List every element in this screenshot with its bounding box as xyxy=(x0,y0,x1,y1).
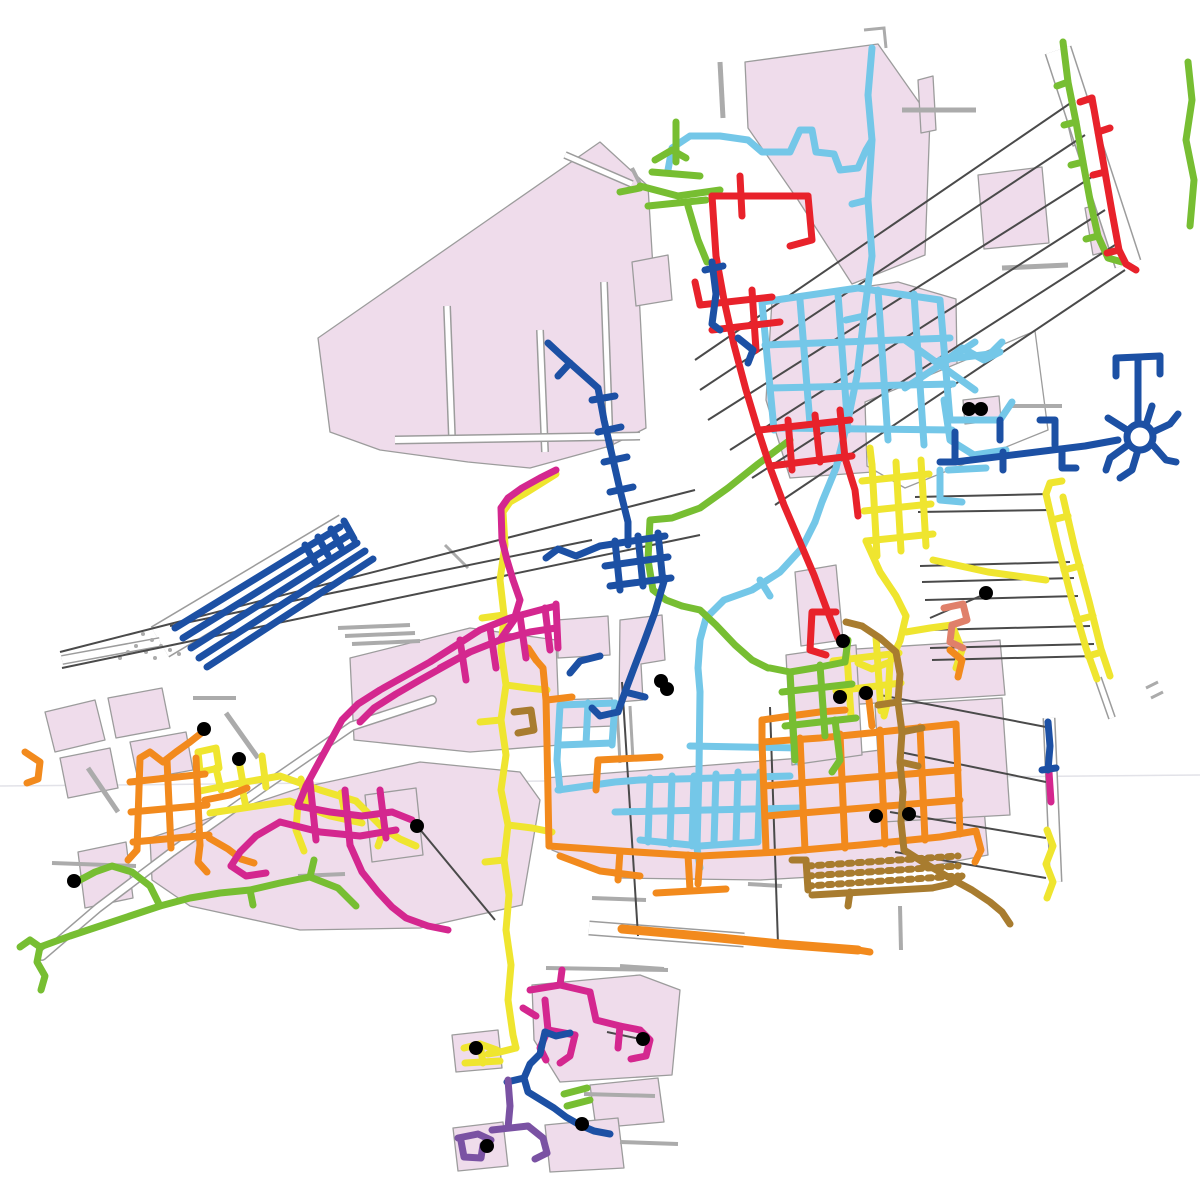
surface-area-polygon xyxy=(108,688,170,738)
passage-path xyxy=(465,1061,500,1063)
entrance-dot xyxy=(67,874,81,888)
passage-path xyxy=(876,637,881,711)
reference-bar xyxy=(1151,692,1163,698)
trail-dot xyxy=(168,648,172,652)
passage-path xyxy=(250,890,253,905)
survey-line xyxy=(922,578,1074,582)
passage-path xyxy=(528,1126,547,1159)
passage-path xyxy=(546,546,600,558)
passage-path xyxy=(815,415,820,462)
passage-path xyxy=(482,615,504,618)
entrance-dot xyxy=(232,752,246,766)
passage-path xyxy=(610,487,633,492)
passage-path xyxy=(25,752,40,783)
passage-path xyxy=(640,186,720,196)
passage-path xyxy=(880,730,885,844)
passage-path xyxy=(920,727,925,840)
passage-path xyxy=(175,527,340,628)
survey-line xyxy=(915,494,1048,497)
entrance-dot xyxy=(859,686,873,700)
surface-area-polygon xyxy=(978,167,1049,249)
passage-path xyxy=(167,760,171,848)
passage-path xyxy=(869,700,872,726)
passage-path xyxy=(1186,62,1194,226)
passage-path xyxy=(1048,722,1050,770)
corridor-inner xyxy=(1098,678,1112,718)
passage-path xyxy=(492,1126,528,1130)
map-canvas xyxy=(0,0,1200,1200)
passage-path xyxy=(870,448,872,465)
ring-structures-layer xyxy=(1127,424,1153,450)
surface-area-polygon xyxy=(45,700,105,752)
passage-path xyxy=(752,290,756,350)
passage-path xyxy=(846,316,864,320)
passage-path xyxy=(1057,82,1068,86)
passage-path xyxy=(1042,768,1056,770)
entrance-dot xyxy=(962,402,976,416)
passage-path xyxy=(1108,418,1127,430)
entrance-dot xyxy=(197,722,211,736)
passage-path xyxy=(196,758,200,845)
surface-area-polygon xyxy=(918,76,936,133)
passage-path xyxy=(656,889,726,893)
passage-path xyxy=(770,384,953,388)
surface-area-polygon xyxy=(632,255,672,306)
passage-path xyxy=(670,776,672,844)
trail-dot xyxy=(134,644,138,648)
reference-bar xyxy=(592,898,646,900)
reference-bar xyxy=(338,625,410,628)
reference-bar xyxy=(630,706,633,760)
passage-path xyxy=(906,625,952,632)
passage-path xyxy=(740,176,742,216)
passage-path xyxy=(688,206,707,262)
passage-path xyxy=(688,855,690,890)
passage-path xyxy=(560,970,562,985)
passage-path xyxy=(878,702,898,705)
passage-path xyxy=(902,728,922,732)
trail-dot xyxy=(153,656,157,660)
passage-path xyxy=(615,541,620,590)
reference-bar xyxy=(345,633,415,636)
passage-path xyxy=(137,758,140,850)
reference-bar xyxy=(900,906,901,950)
passage-path xyxy=(1107,250,1119,253)
entrance-dot xyxy=(979,586,993,600)
reference-bar xyxy=(226,713,258,758)
entrance-dot xyxy=(902,807,916,821)
passage-path xyxy=(940,470,962,502)
passage-path xyxy=(812,888,932,895)
passage-path xyxy=(547,744,549,846)
passage-path xyxy=(698,856,700,884)
survey-line xyxy=(925,596,1078,600)
passage-path xyxy=(1049,772,1051,802)
trail-dot xyxy=(150,638,154,642)
passage-path xyxy=(848,892,850,906)
passage-path xyxy=(598,757,660,760)
passage-path xyxy=(800,738,805,850)
passage-path xyxy=(648,200,706,206)
passage-path xyxy=(570,656,600,673)
entrance-dot xyxy=(410,819,424,833)
passage-path xyxy=(567,1100,590,1106)
survey-line xyxy=(918,510,1052,512)
passage-path xyxy=(695,282,700,305)
passage-path xyxy=(508,1080,510,1128)
passage-path xyxy=(682,606,768,668)
passage-path xyxy=(806,860,808,890)
passage-path xyxy=(658,533,663,583)
reference-bar xyxy=(1002,265,1068,268)
passage-path xyxy=(638,536,643,586)
passage-path xyxy=(1116,356,1160,358)
rotunda-ring xyxy=(1127,424,1153,450)
passage-path xyxy=(618,1026,620,1048)
passage-path xyxy=(547,697,572,700)
passage-path xyxy=(736,772,738,842)
entrance-dot xyxy=(469,1041,483,1055)
passage-path xyxy=(1152,444,1176,462)
entrance-dot xyxy=(636,1032,650,1046)
passage-path xyxy=(345,790,350,845)
passage-path xyxy=(625,692,645,697)
passage-path xyxy=(1071,162,1083,165)
passage-path xyxy=(1064,122,1076,125)
passage-path xyxy=(900,762,918,766)
passage-path xyxy=(128,850,137,860)
passage-path xyxy=(1098,128,1110,132)
reference-bar xyxy=(1146,682,1158,688)
entrance-dot xyxy=(974,402,988,416)
passage-path xyxy=(1062,452,1076,468)
passage-path xyxy=(615,808,800,812)
entrance-dot xyxy=(836,634,850,648)
passage-path xyxy=(1106,445,1128,470)
passage-path xyxy=(714,774,716,844)
passage-path xyxy=(852,200,868,204)
passage-path xyxy=(788,420,792,470)
passage-path xyxy=(648,778,650,842)
passage-path xyxy=(485,860,504,862)
entrance-dot xyxy=(480,1139,494,1153)
trail-dot xyxy=(177,652,181,656)
entrance-dot xyxy=(833,690,847,704)
passage-path xyxy=(586,703,588,744)
corridor-inner xyxy=(395,436,640,440)
passage-path xyxy=(1153,414,1178,432)
passage-path xyxy=(596,760,598,790)
reference-bar xyxy=(584,1094,655,1096)
entrance-dot xyxy=(869,809,883,823)
reference-bar xyxy=(620,1142,678,1144)
entrance-dot xyxy=(660,682,674,696)
passage-path xyxy=(545,1032,570,1036)
passage-path xyxy=(556,604,558,648)
passage-path xyxy=(1093,172,1105,175)
passage-path xyxy=(705,266,723,270)
cave-survey-map xyxy=(0,0,1200,1200)
passage-path xyxy=(956,724,960,834)
passage-path xyxy=(1052,516,1068,520)
passage-path xyxy=(598,427,621,432)
passage-path xyxy=(604,457,627,462)
passage-path xyxy=(1080,98,1092,102)
passage-path xyxy=(310,860,314,877)
passage-path xyxy=(592,396,615,400)
passage-path xyxy=(652,172,700,176)
trail-dot xyxy=(141,632,145,636)
surface-area-polygon xyxy=(557,616,610,658)
passage-path xyxy=(564,1088,587,1094)
passage-path xyxy=(840,410,845,458)
passage-path xyxy=(858,950,870,952)
passage-path xyxy=(1064,566,1080,570)
passage-path xyxy=(480,720,501,722)
passage-path xyxy=(1077,616,1093,620)
passage-path xyxy=(948,468,986,470)
passage-path xyxy=(1088,652,1102,656)
passage-path xyxy=(758,772,760,840)
passage-path xyxy=(1120,450,1138,478)
entrance-dot xyxy=(575,1117,589,1131)
passage-path xyxy=(692,776,694,846)
passage-path xyxy=(1086,236,1098,239)
passage-path xyxy=(545,608,550,650)
passage-path xyxy=(846,622,862,626)
passage-path xyxy=(620,188,640,192)
reference-bar xyxy=(720,62,723,118)
